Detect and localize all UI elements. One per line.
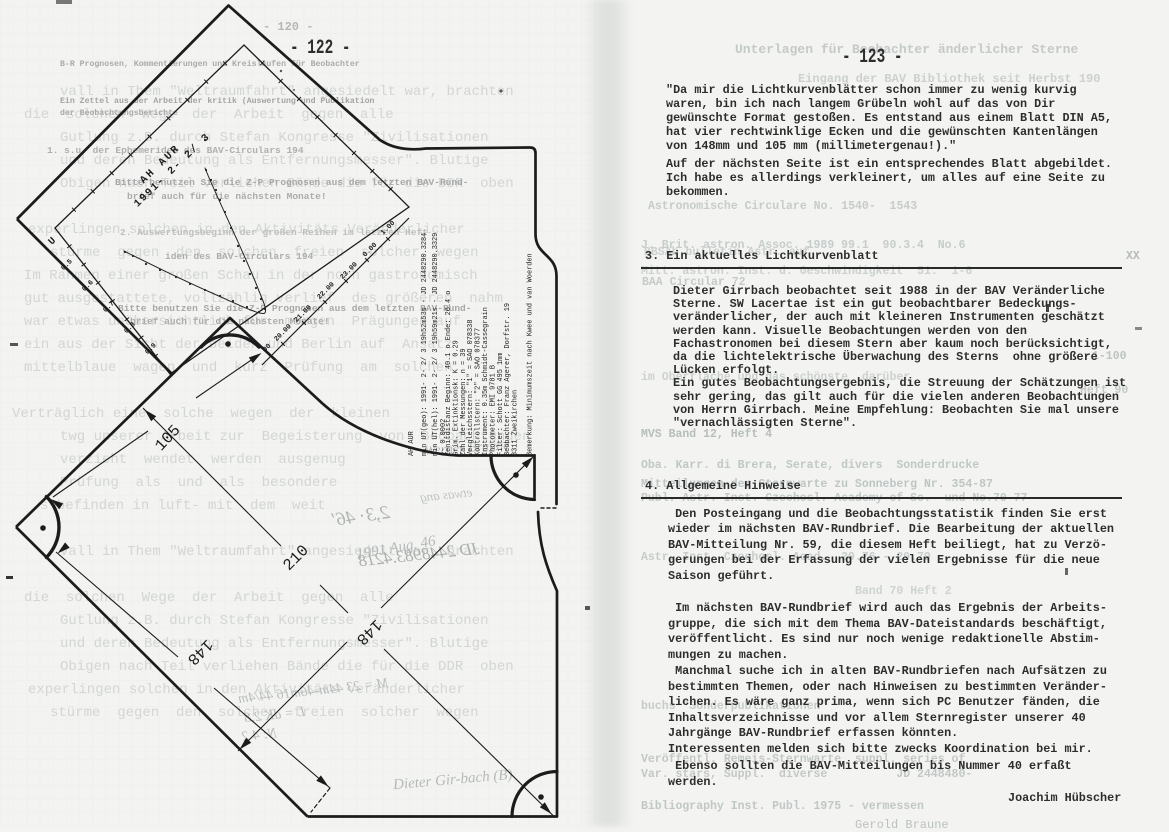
- svg-text:210: 210: [280, 542, 313, 575]
- svg-text:22.00: 22.00: [316, 281, 337, 302]
- svg-text:105: 105: [152, 422, 185, 455]
- svg-text:0.5: 0.5: [60, 258, 75, 273]
- svg-text:148: 148: [352, 615, 385, 648]
- svg-text:AH AUR: AH AUR: [408, 431, 416, 456]
- svg-text:min UT(hel): 1991- 2- 2/ 3 19h: min UT(hel): 1991- 2- 2/ 3 19h59m21s - J…: [432, 233, 440, 456]
- svg-text:8311 Zweikirchen: 8311 Zweikirchen: [512, 390, 520, 456]
- svg-text:0.7: 0.7: [102, 300, 117, 315]
- svg-text:U: U: [47, 236, 59, 248]
- svg-text:21.00: 21.00: [293, 304, 314, 325]
- svg-text:00: 00: [261, 342, 273, 354]
- svg-text:1.00: 1.00: [380, 220, 398, 238]
- svg-text:148: 148: [183, 635, 216, 668]
- svg-text:1991- 2- 2/ 3: 1991- 2- 2/ 3: [132, 131, 213, 210]
- svg-text:0.6: 0.6: [81, 279, 96, 294]
- svg-text:min UT(geo): 1991- 2- 2/ 3 19h: min UT(geo): 1991- 2- 2/ 3 19h52m53s - J…: [421, 233, 429, 456]
- svg-text:20.00: 20.00: [273, 323, 294, 344]
- svg-text:0.8: 0.8: [123, 321, 138, 336]
- svg-text:Bemerkung: Minimumszeit nach K: Bemerkung: Minimumszeit nach Kwee und va…: [526, 253, 534, 456]
